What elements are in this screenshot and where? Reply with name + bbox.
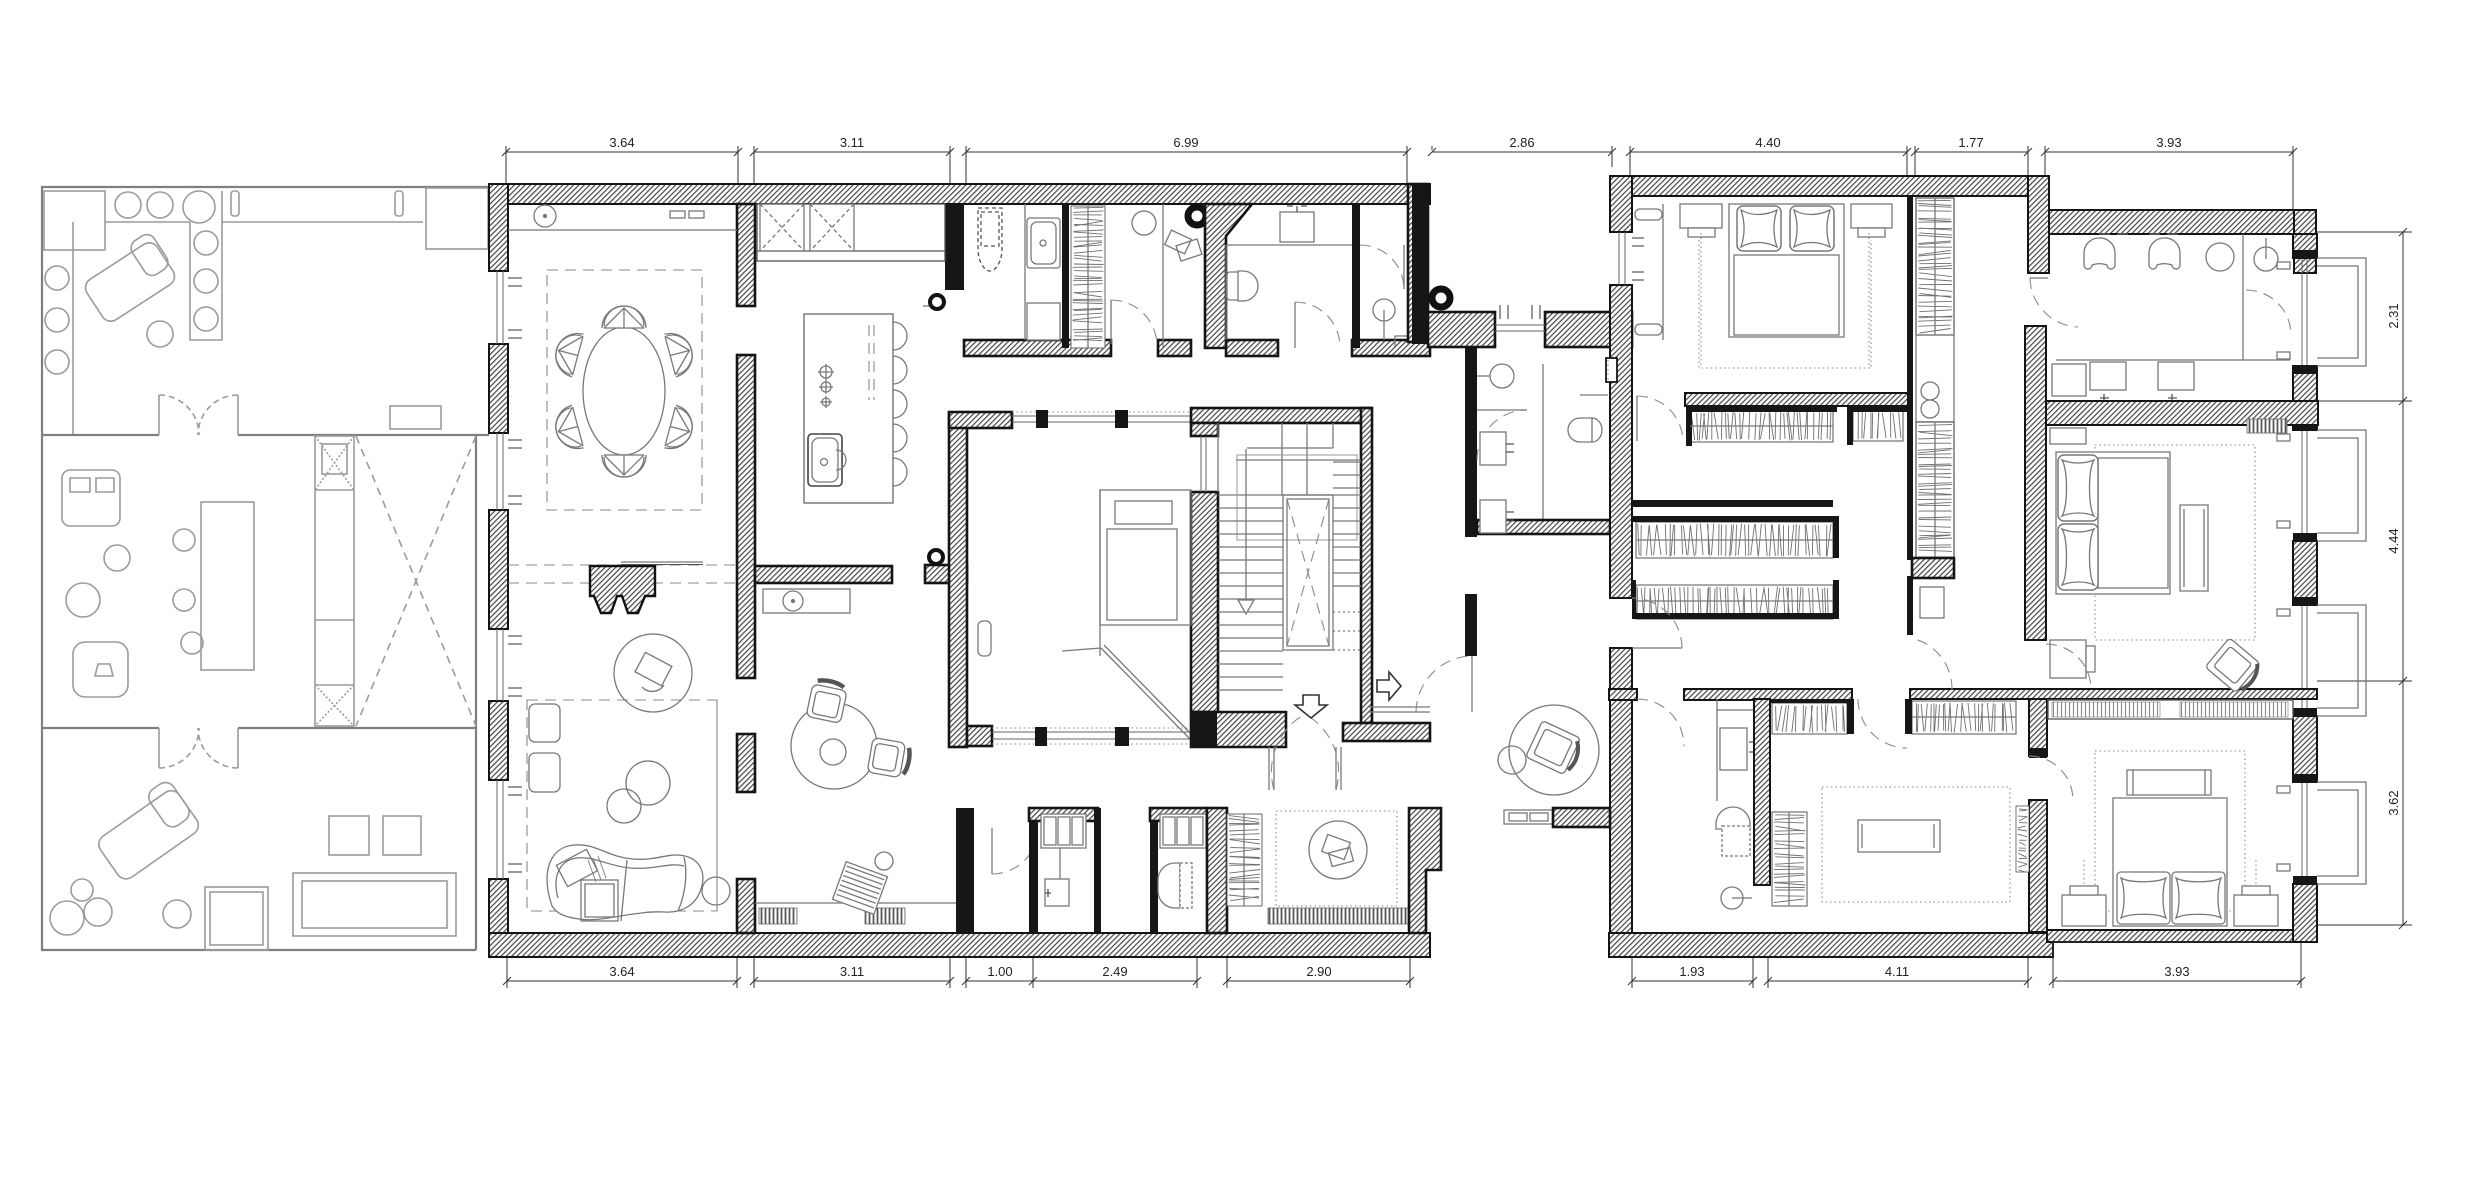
svg-text:1.77: 1.77	[1958, 135, 1983, 150]
svg-text:4.11: 4.11	[1885, 964, 1909, 979]
svg-text:6.99: 6.99	[1173, 135, 1198, 150]
svg-text:1.00: 1.00	[987, 964, 1012, 979]
svg-text:2.31: 2.31	[2386, 303, 2401, 328]
svg-text:3.93: 3.93	[2164, 964, 2189, 979]
svg-text:3.11: 3.11	[840, 135, 864, 150]
svg-text:2.86: 2.86	[1509, 135, 1534, 150]
svg-text:4.40: 4.40	[1755, 135, 1780, 150]
svg-text:3.93: 3.93	[2156, 135, 2181, 150]
svg-text:3.11: 3.11	[840, 964, 864, 979]
svg-text:1.93: 1.93	[1679, 964, 1704, 979]
svg-text:2.90: 2.90	[1306, 964, 1331, 979]
svg-text:3.62: 3.62	[2386, 790, 2401, 815]
svg-text:2.49: 2.49	[1102, 964, 1127, 979]
svg-text:3.64: 3.64	[609, 964, 634, 979]
svg-text:3.64: 3.64	[609, 135, 634, 150]
svg-text:4.44: 4.44	[2386, 528, 2401, 553]
